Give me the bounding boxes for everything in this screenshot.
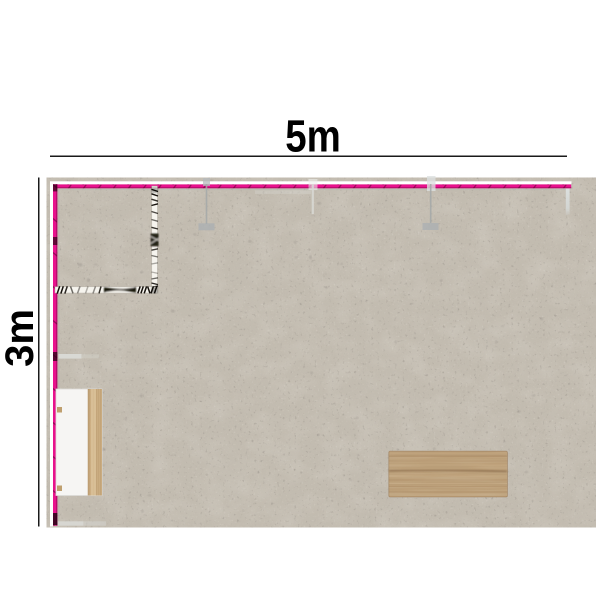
- svg-text:5m: 5m: [285, 110, 341, 161]
- svg-text:3m: 3m: [0, 309, 42, 367]
